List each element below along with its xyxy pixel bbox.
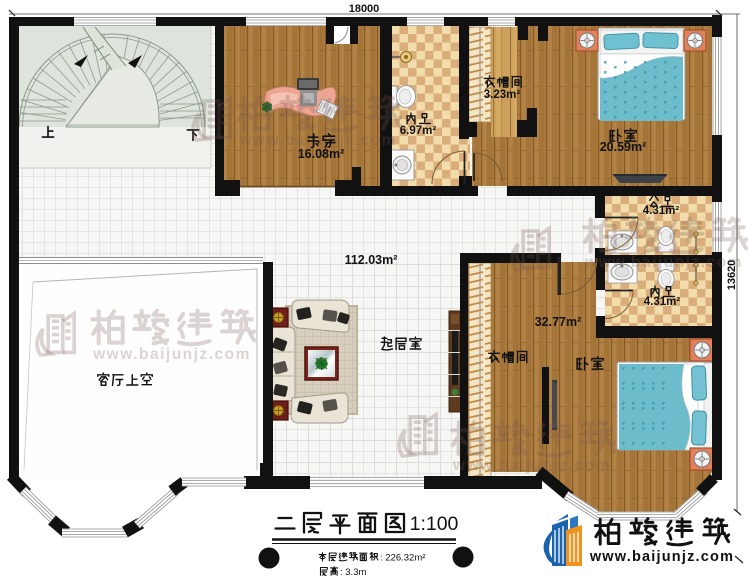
svg-text:16.08m²: 16.08m² <box>298 147 345 161</box>
svg-text:: 3.3m: : 3.3m <box>340 567 366 578</box>
svg-text:13620: 13620 <box>726 260 738 291</box>
svg-text:www.baijunjz.com: www.baijunjz.com <box>452 457 611 474</box>
svg-text:20.59m²: 20.59m² <box>600 140 647 154</box>
svg-text:4.31m²: 4.31m² <box>644 296 681 308</box>
svg-text:3.23m²: 3.23m² <box>484 89 521 101</box>
svg-text:1:100: 1:100 <box>410 513 459 535</box>
svg-text:www.baijunjz.com: www.baijunjz.com <box>589 549 734 565</box>
svg-text:: 226.32m²: : 226.32m² <box>380 553 425 564</box>
svg-text:www.baijunjz.com: www.baijunjz.com <box>92 346 251 363</box>
svg-text:4.31m²: 4.31m² <box>643 205 680 217</box>
svg-text:www.baijunjz.com: www.baijunjz.com <box>584 254 743 271</box>
svg-text:112.03m²: 112.03m² <box>345 253 398 267</box>
svg-text:32.77m²: 32.77m² <box>535 315 582 329</box>
svg-text:6.97m²: 6.97m² <box>400 125 437 137</box>
svg-text:18000: 18000 <box>349 3 380 15</box>
